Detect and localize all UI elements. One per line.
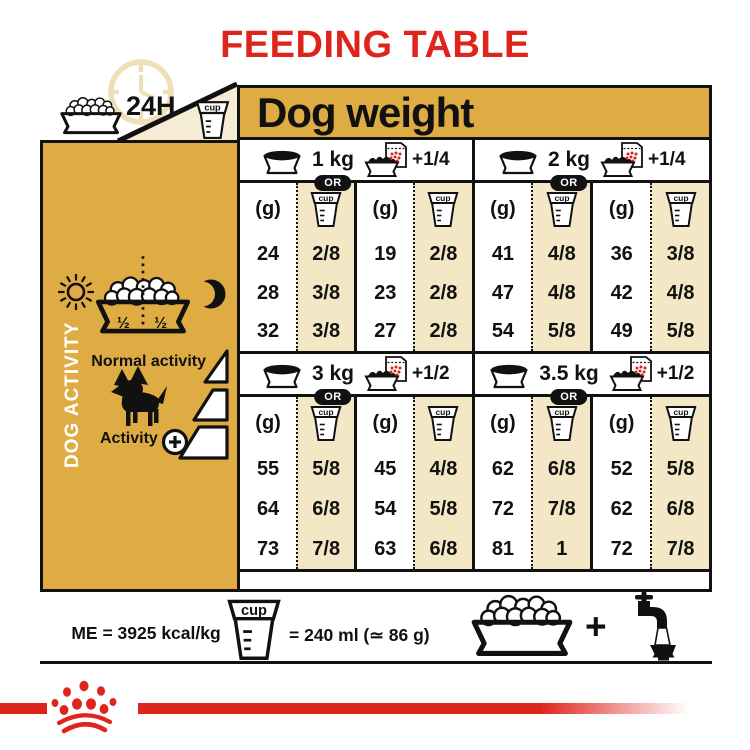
measuring-cup-icon [428, 405, 458, 441]
grams-value: 63 [357, 529, 413, 569]
dog-weight-header: Dog weight [237, 85, 712, 140]
cup-column-kibble: 2/8 3/8 3/8 [296, 183, 354, 351]
grams-value: 54 [357, 489, 413, 529]
cup-column-with-wet: 3/8 4/8 5/8 [650, 183, 709, 351]
dog-weight-label: 2 kg [548, 148, 590, 171]
grams-value: 45 [357, 449, 413, 489]
grams-value: 62 [475, 449, 532, 489]
wet-food-add-label: +1/2 [657, 363, 695, 385]
cup-unit-icon [652, 183, 709, 235]
cup-column-kibble: 5/8 6/8 7/8 [296, 397, 354, 569]
grams-column-with-wet: (g) 19 23 27 [354, 183, 413, 351]
grams-value: 19 [357, 235, 413, 274]
cup-value: 7/8 [652, 529, 709, 569]
section-columns: (g) 24 28 32 2/8 3/8 3/8 (g) 19 23 [240, 183, 472, 351]
weight-and-or: 3 kg OR [312, 362, 354, 386]
section-header: 1 kg OR +1/4 [240, 140, 472, 183]
cup-value: 2/8 [415, 312, 471, 351]
measuring-cup-icon [311, 191, 341, 227]
measuring-cup-icon [428, 191, 458, 227]
dog-activity-vertical-label: DOG ACTIVITY [62, 322, 84, 468]
activity-level-wedges [160, 344, 238, 466]
grams-value: 41 [475, 235, 532, 274]
grams-column-with-wet: (g) 52 62 72 [590, 397, 650, 569]
cup-column-with-wet: 5/8 6/8 7/8 [650, 397, 709, 569]
measuring-cup-icon [196, 100, 229, 139]
measuring-cup-icon [547, 405, 577, 441]
grams-value: 73 [240, 529, 296, 569]
cup-unit-icon [652, 397, 709, 449]
bowl-with-wet-pouch-icon [600, 141, 646, 177]
wet-food-add-label: +1/4 [412, 149, 450, 171]
weight-and-or: 1 kg OR [312, 148, 354, 172]
cup-equivalence-label: = 240 ml (≃ 86 g) [289, 625, 430, 646]
empty-bowl-icon [262, 149, 302, 175]
grams-unit-label: (g) [475, 397, 532, 449]
footer-divider [40, 661, 712, 664]
grams-unit-label: (g) [240, 183, 296, 235]
cup-value: 4/8 [652, 274, 709, 313]
cup-value: 2/8 [415, 235, 471, 274]
grams-value: 47 [475, 274, 532, 313]
cup-column-with-wet: 4/8 5/8 6/8 [413, 397, 471, 569]
feeding-table-page: cup [0, 0, 750, 750]
cup-value: 5/8 [652, 312, 709, 351]
half-portion-left: ½ [117, 315, 130, 332]
bowl-with-wet-pouch-icon [609, 355, 655, 391]
wet-food-add-label: +1/4 [648, 149, 686, 171]
measuring-cup-icon [666, 405, 696, 441]
measuring-cup-icon [547, 191, 577, 227]
weight-section: 3 kg OR +1/2 (g) 55 64 73 5/8 [240, 354, 475, 572]
empty-bowl-icon [489, 363, 529, 389]
grams-value: 27 [357, 312, 413, 351]
empty-bowl-icon [498, 149, 538, 175]
cup-value: 7/8 [298, 529, 354, 569]
grams-value: 49 [593, 312, 650, 351]
grams-unit-label: (g) [240, 397, 296, 449]
cup-value: 5/8 [298, 449, 354, 489]
weight-section: 1 kg OR +1/4 (g) 24 28 32 2/8 [240, 140, 475, 354]
grams-value: 81 [475, 529, 532, 569]
cup-column-kibble: 6/8 7/8 1 [531, 397, 590, 569]
or-badge: OR [314, 175, 352, 191]
metabolizable-energy-label: ME = 3925 kcal/kg [60, 623, 232, 644]
weight-and-or: 2 kg OR [548, 148, 590, 172]
section-columns: (g) 55 64 73 5/8 6/8 7/8 (g) 45 54 [240, 397, 472, 569]
cup-value: 3/8 [652, 235, 709, 274]
bowl-with-wet-pouch-icon [364, 355, 410, 391]
grams-column-with-wet: (g) 36 42 49 [590, 183, 650, 351]
grams-value: 64 [240, 489, 296, 529]
weight-and-or: 3.5 kg OR [539, 362, 599, 386]
grams-value: 36 [593, 235, 650, 274]
or-badge: OR [314, 389, 352, 405]
kibble-bowl-icon [57, 94, 125, 136]
brand-stripe-left [0, 703, 47, 714]
cup-value: 3/8 [298, 274, 354, 313]
grams-value: 54 [475, 312, 532, 351]
bowl-with-wet-pouch-icon [364, 141, 410, 177]
dog-weight-header-label: Dog weight [257, 89, 473, 137]
grams-value: 72 [475, 489, 532, 529]
grams-value: 32 [240, 312, 296, 351]
brand-stripe-right [138, 703, 712, 714]
cup-value: 5/8 [533, 312, 590, 351]
dog-weight-label: 3.5 kg [539, 362, 599, 385]
dog-weight-label: 1 kg [312, 148, 354, 171]
grams-column-kibble: (g) 62 72 81 [475, 397, 532, 569]
split-meal-bowl-icon: ½ ½ [91, 255, 195, 351]
grams-value: 24 [240, 235, 296, 274]
or-badge: OR [550, 175, 588, 191]
cup-value: 2/8 [415, 274, 471, 313]
cup-unit-icon [415, 397, 471, 449]
measuring-cup-icon [311, 405, 341, 441]
cup-column-with-wet: 2/8 2/8 2/8 [413, 183, 471, 351]
grams-unit-label: (g) [357, 397, 413, 449]
section-columns: (g) 41 47 54 4/8 4/8 5/8 (g) 36 42 [475, 183, 710, 351]
water-faucet-icon [608, 591, 680, 661]
cup-value: 6/8 [533, 449, 590, 489]
grams-unit-label: (g) [593, 183, 650, 235]
cup-value: 6/8 [298, 489, 354, 529]
half-portion-right: ½ [154, 315, 167, 332]
section-header: 3.5 kg OR +1/2 [475, 354, 710, 397]
empty-bowl-icon [262, 363, 302, 389]
grams-value: 55 [240, 449, 296, 489]
grams-column-kibble: (g) 55 64 73 [240, 397, 296, 569]
grams-value: 42 [593, 274, 650, 313]
grams-unit-label: (g) [475, 183, 532, 235]
plus-sign: + [585, 606, 607, 648]
cup-value: 2/8 [298, 235, 354, 274]
measuring-cup-icon [666, 191, 696, 227]
cup-value: 7/8 [533, 489, 590, 529]
grams-value: 23 [357, 274, 413, 313]
wet-food-add-label: +1/2 [412, 363, 450, 385]
cup-value: 3/8 [298, 312, 354, 351]
cup-value: 1 [533, 529, 590, 569]
moon-icon [197, 277, 227, 311]
grams-unit-label: (g) [593, 397, 650, 449]
grams-value: 52 [593, 449, 650, 489]
cup-unit-icon [415, 183, 471, 235]
grams-value: 28 [240, 274, 296, 313]
cup-value: 4/8 [533, 274, 590, 313]
weight-section: 3.5 kg OR +1/2 (g) 62 72 81 6/8 [475, 354, 710, 572]
section-columns: (g) 62 72 81 6/8 7/8 1 (g) 52 62 [475, 397, 710, 569]
dog-weight-label: 3 kg [312, 362, 354, 385]
grams-column-kibble: (g) 24 28 32 [240, 183, 296, 351]
cup-value: 4/8 [415, 449, 471, 489]
measuring-cup-icon [228, 598, 280, 660]
activity-plus-label: Activity [100, 430, 158, 448]
cup-column-kibble: 4/8 4/8 5/8 [531, 183, 590, 351]
grams-unit-label: (g) [357, 183, 413, 235]
cup-value: 4/8 [533, 235, 590, 274]
cup-value: 5/8 [415, 489, 471, 529]
kibble-bowl-icon [466, 590, 578, 659]
weight-section: 2 kg OR +1/4 (g) 41 47 54 4/8 [475, 140, 710, 354]
or-badge: OR [550, 389, 588, 405]
section-header: 3 kg OR +1/2 [240, 354, 472, 397]
section-header: 2 kg OR +1/4 [475, 140, 710, 183]
cup-value: 6/8 [415, 529, 471, 569]
grams-column-kibble: (g) 41 47 54 [475, 183, 532, 351]
grams-column-with-wet: (g) 45 54 63 [354, 397, 413, 569]
cup-value: 5/8 [652, 449, 709, 489]
cup-value: 6/8 [652, 489, 709, 529]
grams-value: 72 [593, 529, 650, 569]
royal-canin-crown-logo [46, 678, 130, 736]
grams-value: 62 [593, 489, 650, 529]
weight-sections-grid: 1 kg OR +1/4 (g) 24 28 32 2/8 [240, 140, 709, 572]
